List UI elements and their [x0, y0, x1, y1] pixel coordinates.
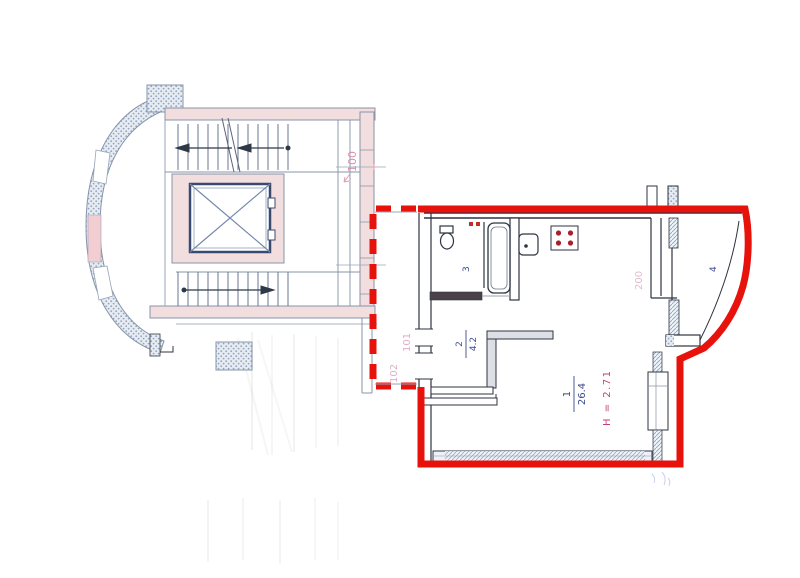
curved-wall-window-upper — [93, 150, 110, 184]
living-number-label: 1 — [562, 391, 573, 397]
stair-direction-arrow-left-2 — [238, 144, 291, 152]
top-tab-right-pier — [668, 186, 678, 208]
upper-stair-flight — [165, 118, 360, 172]
unit-left-wall-door-jambs — [415, 329, 433, 379]
bathtub-icon — [488, 223, 510, 293]
core-right-wall-extension — [362, 318, 372, 393]
toilet-icon — [440, 226, 454, 249]
elevator-door-mark-lower — [268, 230, 275, 240]
living-room-label: 1 26.4 — [562, 376, 588, 412]
corridor-stub-lines — [375, 212, 417, 384]
curved-wall-window-lower — [93, 266, 113, 300]
stair-break-line — [222, 118, 240, 172]
floor-plan-canvas: 100 101 102 3 — [0, 0, 800, 578]
dimension-200-label: 200 — [634, 271, 645, 290]
core-top-wall — [165, 108, 375, 120]
lower-stair-flight — [176, 272, 360, 306]
window-bay-lower-right — [648, 352, 668, 462]
elevator-door-mark-upper — [268, 198, 275, 208]
bottom-window-wall — [433, 451, 652, 461]
unit-label-102: 102 — [389, 364, 400, 383]
balcony-window-upper — [669, 218, 678, 248]
red-dashed-boundary — [373, 209, 424, 386]
unit-top-wall — [424, 213, 742, 218]
stove-icon — [551, 226, 578, 250]
bathroom-red-mark-1 — [469, 222, 473, 226]
bathroom-right-wall — [510, 218, 519, 300]
hall-partition-walls — [420, 331, 553, 405]
living-area-label: 26.4 — [577, 383, 588, 405]
balcony-inner-curve — [700, 221, 739, 340]
stair-direction-arrow-left-1 — [176, 144, 232, 152]
balcony-number-label: 4 — [709, 266, 719, 272]
bathroom-red-mark-2 — [476, 222, 480, 226]
stairwell-core-section — [86, 85, 386, 393]
hall-number-label: 2 — [455, 341, 465, 347]
upper-stair-treads — [178, 124, 288, 170]
curved-wall-pink-segment — [88, 215, 101, 262]
curved-wall-end-piece — [150, 334, 160, 356]
lobby-inner-lines — [338, 120, 350, 306]
top-tab-left-pier — [647, 186, 657, 208]
apartment-unit: 3 2 4.2 1 — [415, 186, 748, 486]
bottom-wall-tab — [216, 342, 252, 370]
floor-plan-page: 100 101 102 3 — [0, 0, 800, 578]
unit-label-101: 101 — [402, 333, 413, 352]
elevator-shaft — [172, 174, 284, 263]
hall-room-label: 2 4.2 — [455, 330, 479, 358]
unit-label-100-arrow — [344, 174, 350, 182]
bathroom-number-label: 3 — [462, 266, 472, 272]
kitchen-sink-icon — [519, 234, 538, 255]
bathroom-bottom-wall — [430, 292, 482, 300]
faint-dimension-squiggle — [652, 472, 670, 486]
ceiling-height-label: H = 2.71 — [602, 369, 613, 426]
core-bottom-wall — [150, 306, 375, 318]
bathroom: 3 — [430, 218, 519, 300]
hall-area-label: 4.2 — [469, 337, 479, 351]
balcony-bottom-wall-hatch — [666, 335, 674, 346]
unit-label-100: 100 — [346, 151, 359, 172]
